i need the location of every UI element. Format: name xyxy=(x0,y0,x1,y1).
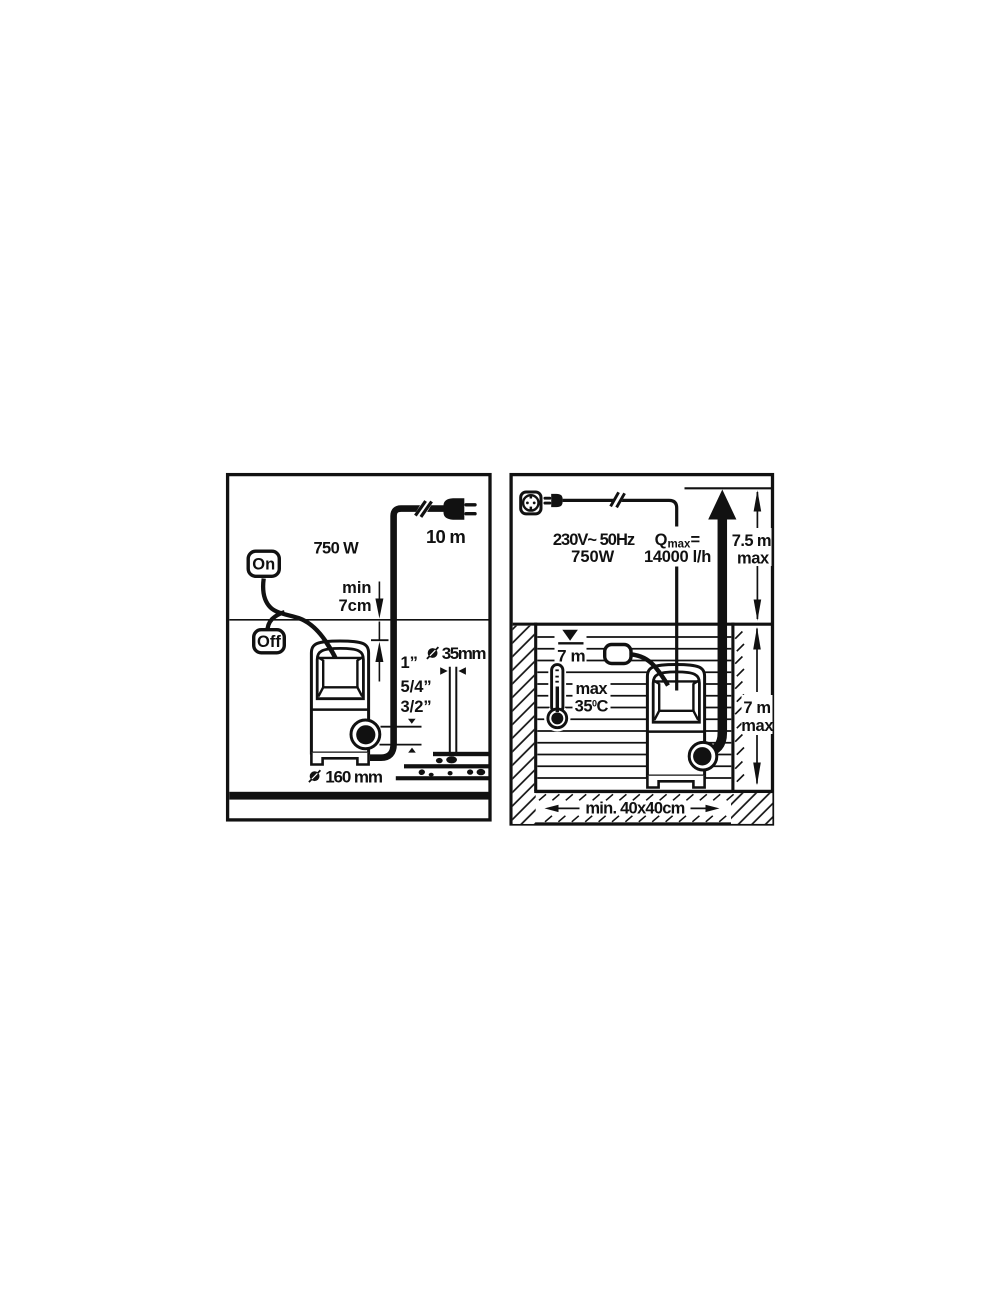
svg-text:7cm: 7cm xyxy=(338,597,371,615)
svg-text:14000 l/h: 14000 l/h xyxy=(644,548,711,566)
svg-text:160 mm: 160 mm xyxy=(325,768,383,787)
svg-text:10 m: 10 m xyxy=(426,526,465,547)
svg-text:750 W: 750 W xyxy=(313,539,359,557)
svg-text:max: max xyxy=(737,549,770,567)
svg-text:Off: Off xyxy=(257,633,281,651)
svg-text:7 m: 7 m xyxy=(743,699,770,717)
svg-text:On: On xyxy=(252,556,275,574)
svg-text:750W: 750W xyxy=(571,548,615,566)
svg-text:7.5 m: 7.5 m xyxy=(732,532,771,550)
svg-text:3/2”: 3/2” xyxy=(401,698,432,716)
svg-text:max: max xyxy=(576,680,609,698)
svg-text:35mm: 35mm xyxy=(442,644,487,663)
svg-text:min. 40x40cm: min. 40x40cm xyxy=(585,799,684,817)
svg-text:max: max xyxy=(741,717,774,735)
svg-text:min: min xyxy=(342,579,371,597)
svg-text:5/4”: 5/4” xyxy=(401,678,432,696)
svg-text:350C: 350C xyxy=(575,698,609,716)
svg-text:230V~ 50Hz: 230V~ 50Hz xyxy=(553,531,635,549)
svg-text:1”: 1” xyxy=(401,654,418,672)
